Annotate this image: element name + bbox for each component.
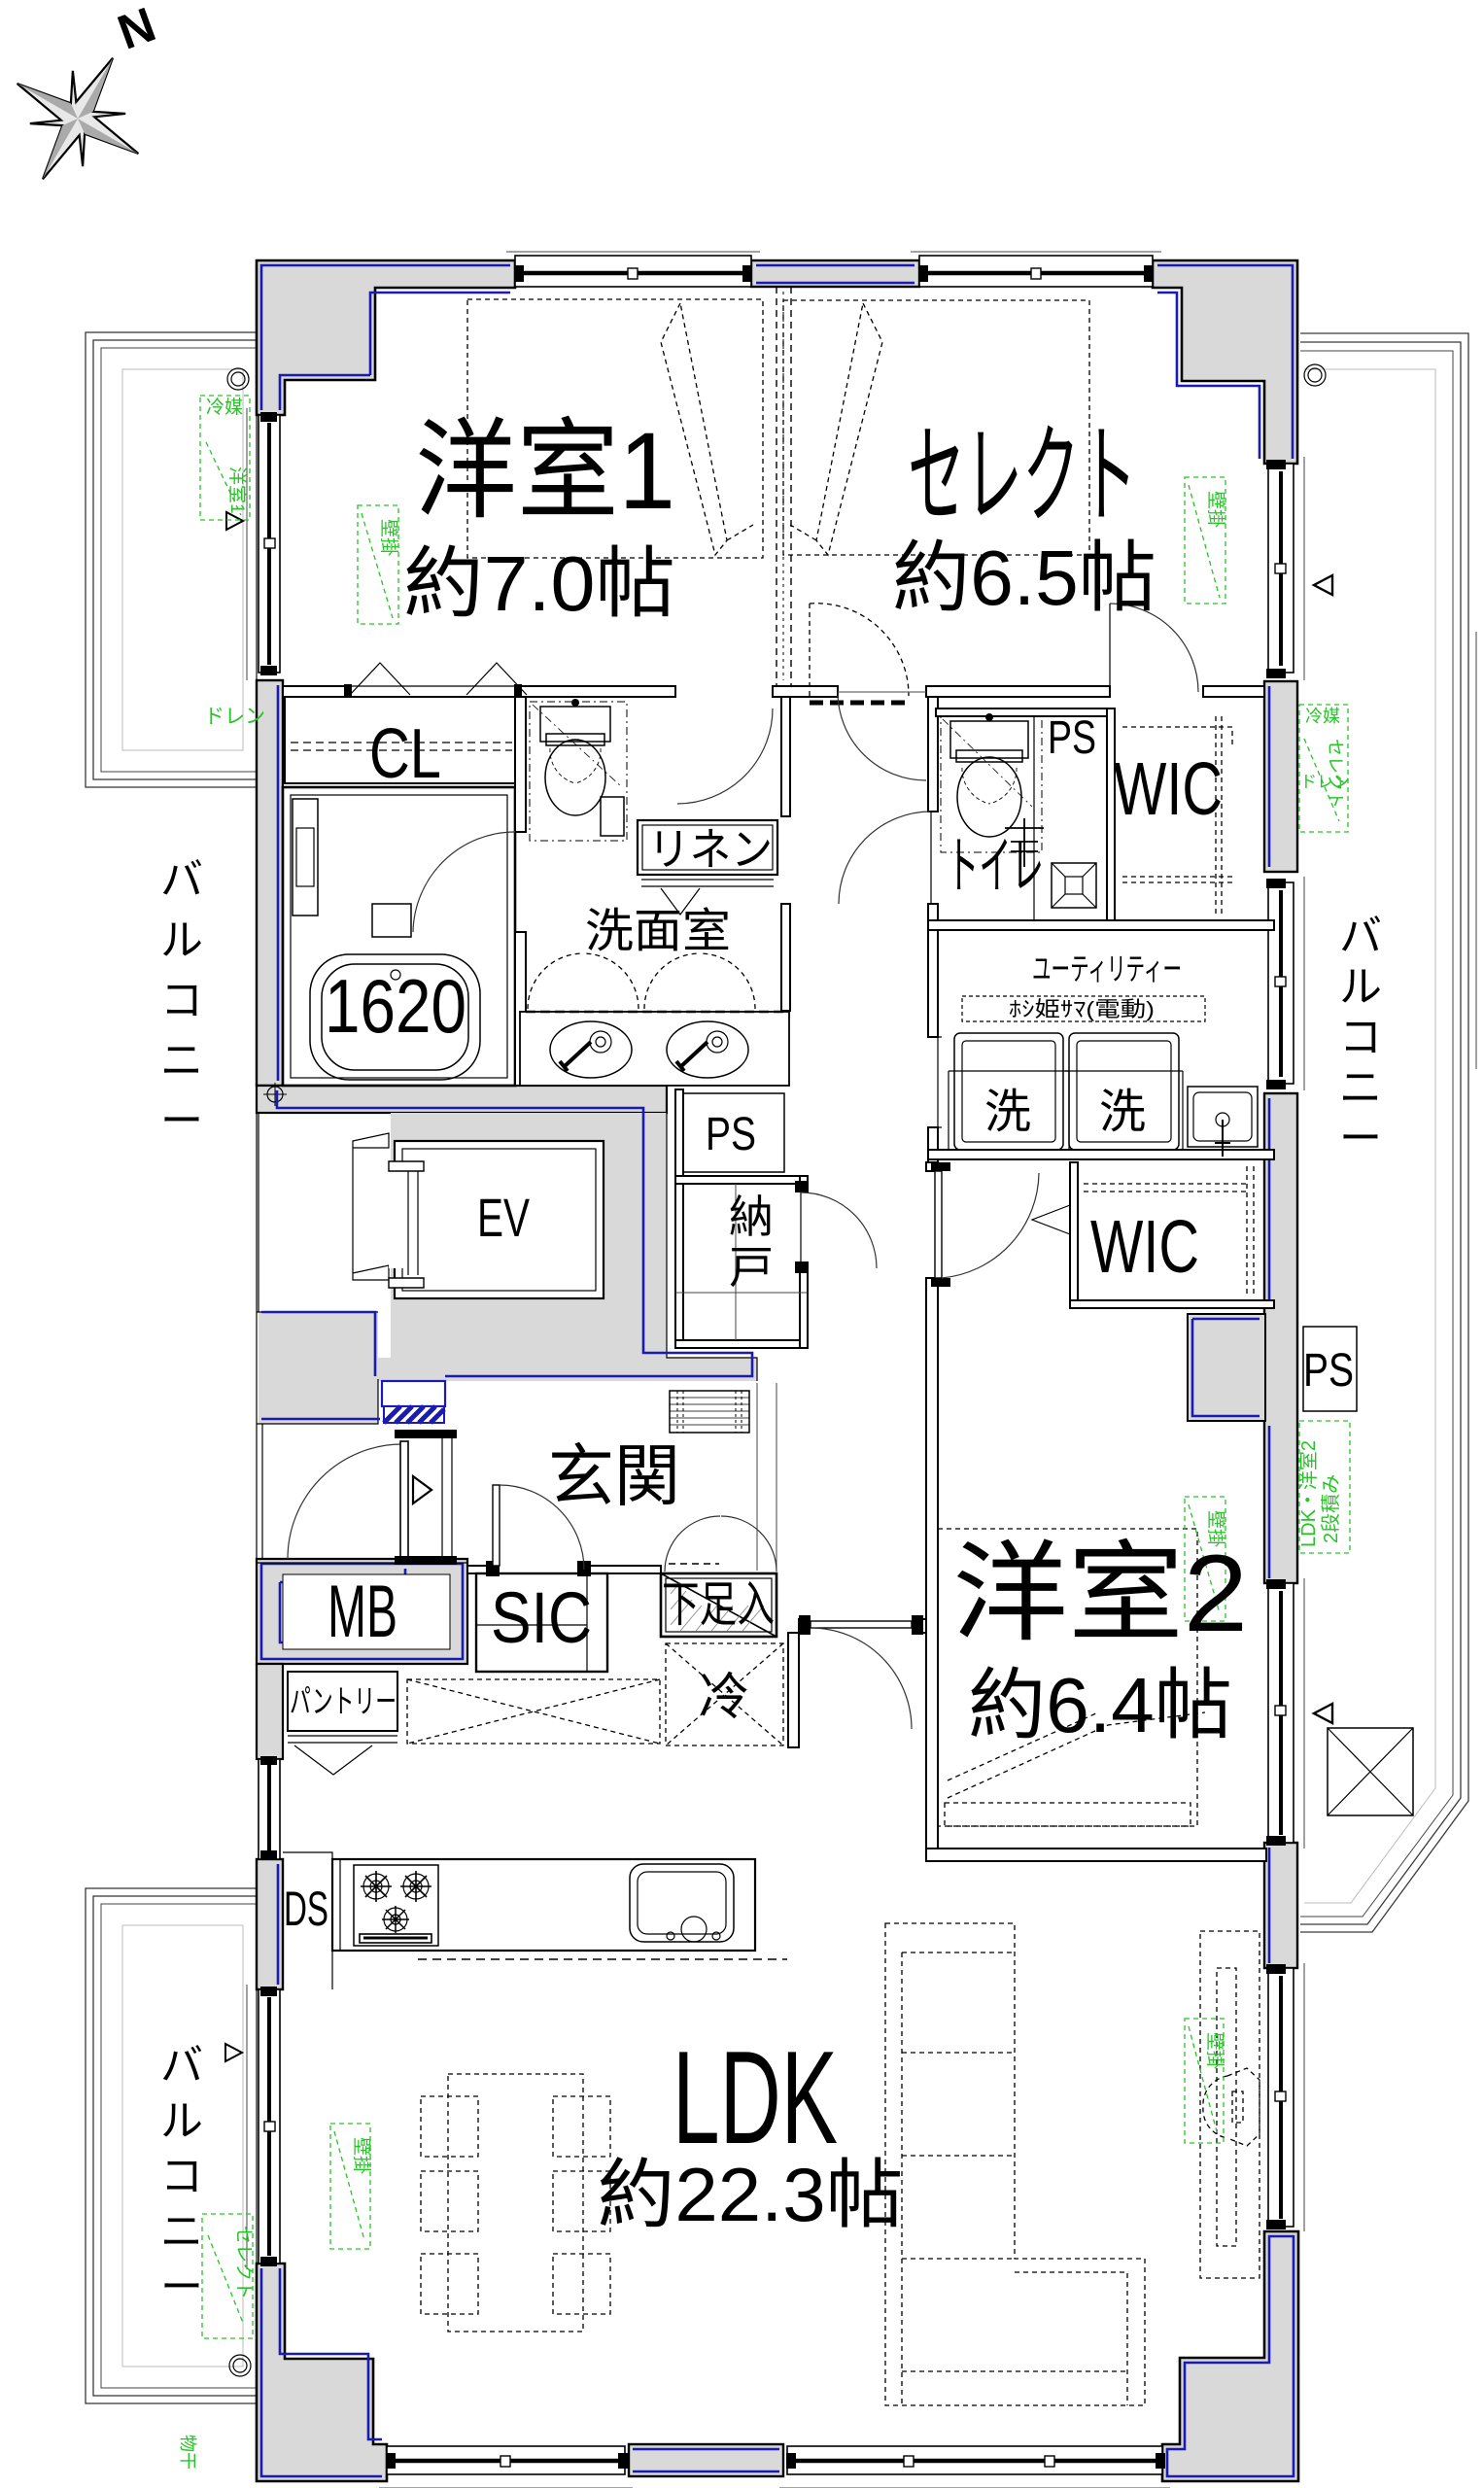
svg-text:PS: PS [1303, 1345, 1354, 1397]
svg-text:LDK: LDK [673, 2023, 838, 2171]
svg-text:冷媒: 冷媒 [1305, 707, 1340, 726]
svg-text:1620: 1620 [325, 963, 466, 1049]
svg-text:EV: EV [477, 1187, 530, 1248]
svg-text:ル: ル [160, 2097, 203, 2145]
svg-text:ー: ー [160, 2263, 203, 2311]
svg-text:バ: バ [160, 856, 203, 904]
svg-text:バ: バ [160, 2042, 203, 2090]
svg-text:ドレン: ドレン [1300, 773, 1350, 791]
svg-text:DS: DS [284, 1882, 328, 1936]
svg-text:バ: バ [1339, 913, 1382, 960]
svg-text:MB: MB [328, 1571, 397, 1653]
svg-text:ニ: ニ [160, 2208, 203, 2256]
svg-text:ー: ー [160, 1097, 203, 1145]
svg-text:PS: PS [1048, 712, 1096, 764]
svg-text:SIC: SIC [491, 1577, 592, 1658]
svg-text:約7.0帖: 約7.0帖 [403, 540, 675, 627]
svg-text:パントリー: パントリー [290, 1683, 397, 1719]
svg-text:洗: 洗 [984, 1087, 1031, 1138]
svg-text:コ: コ [1339, 1014, 1382, 1061]
svg-text:冷媒: 冷媒 [206, 397, 243, 418]
svg-text:2段積み: 2段積み [1320, 1474, 1342, 1543]
svg-text:トイレ: トイレ [947, 831, 1044, 901]
svg-text:ル: ル [1339, 963, 1382, 1011]
svg-text:洋室1: 洋室1 [226, 466, 248, 514]
svg-text:戸: 戸 [729, 1242, 774, 1293]
svg-text:ー: ー [1339, 1115, 1382, 1162]
svg-text:PS: PS [706, 1109, 756, 1160]
svg-text:ドレン: ドレン [204, 706, 265, 728]
svg-text:WIC: WIC [1090, 1205, 1199, 1289]
svg-text:セレクト: セレクト [908, 415, 1137, 536]
svg-text:コ: コ [160, 977, 203, 1024]
svg-text:ﾎｼ姫ｻﾏ(電動): ﾎｼ姫ｻﾏ(電動) [1009, 997, 1155, 1021]
svg-text:洗: 洗 [1099, 1087, 1146, 1138]
svg-text:物干: 物干 [178, 2435, 197, 2470]
svg-text:LDK・洋室2: LDK・洋室2 [1297, 1440, 1320, 1547]
svg-text:約6.4帖: 約6.4帖 [968, 1662, 1232, 1748]
svg-text:洋室2: 洋室2 [952, 1533, 1248, 1654]
svg-text:壁掛: 壁掛 [1204, 2032, 1225, 2069]
svg-text:WIC: WIC [1114, 747, 1223, 831]
svg-text:納: 納 [729, 1192, 774, 1242]
svg-text:ユーティリティー: ユーティリティー [1032, 951, 1182, 986]
svg-text:ニ: ニ [1339, 1064, 1382, 1112]
svg-text:下足入: 下足入 [662, 1577, 775, 1632]
svg-text:リネン: リネン [648, 824, 773, 875]
svg-text:壁掛: 壁掛 [1205, 491, 1226, 528]
svg-text:約6.5帖: 約6.5帖 [892, 535, 1156, 621]
svg-text:冷: 冷 [699, 1670, 749, 1726]
svg-text:約22.3帖: 約22.3帖 [598, 2152, 904, 2237]
svg-text:玄関: 玄関 [548, 1438, 680, 1514]
svg-text:CL: CL [369, 715, 441, 793]
svg-text:洋室1: 洋室1 [415, 410, 675, 532]
svg-text:ニ: ニ [160, 1037, 203, 1085]
svg-text:ル: ル [160, 916, 203, 964]
svg-text:洗面室: 洗面室 [585, 906, 731, 957]
svg-text:セレクト: セレクト [233, 2226, 255, 2299]
svg-text:壁掛: 壁掛 [351, 2137, 372, 2174]
svg-text:壁掛: 壁掛 [378, 519, 399, 556]
svg-text:コ: コ [160, 2153, 203, 2200]
